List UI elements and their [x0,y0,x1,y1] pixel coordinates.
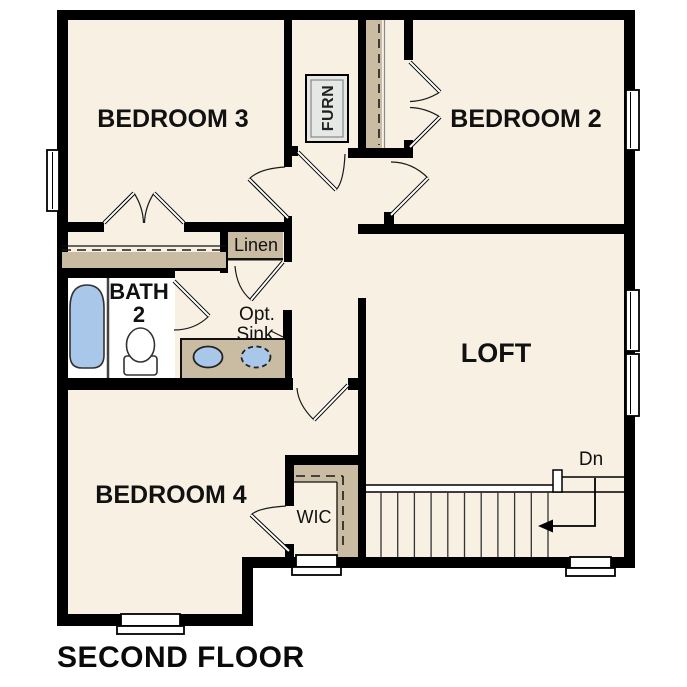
wall-segment [358,224,635,234]
bedroom2-closet [366,20,385,148]
wall-segment [57,10,635,20]
wall-segment [57,378,293,390]
window-bedroom2-right [626,90,639,150]
linen-closet: Linen [228,232,283,261]
wall-segment [358,298,366,557]
closet-shelf [62,252,226,268]
optional-sink-dashed [242,347,271,368]
page-title: SECOND FLOOR [57,641,305,674]
loft-label: LOFT [461,338,532,368]
vanity-sink [194,347,223,368]
bath-label-line2: 2 [133,302,145,327]
stair-stringer [366,485,555,492]
closet-shelf [337,482,358,557]
window-bedroom3-left [47,150,59,211]
bathtub [70,285,104,368]
linen-label: Linen [234,235,278,255]
wall-segment [284,20,292,167]
wall-segment [57,10,68,626]
window-loft-right-upper [626,290,639,351]
window-loft-right-lower [626,354,639,416]
wall-segment [285,455,366,465]
wall-segment [184,222,292,232]
wall-segment [348,378,366,390]
bath-label-line1: BATH [109,279,168,304]
bedroom2-label: BEDROOM 2 [450,105,601,133]
stairs-down-label: Dn [579,449,603,470]
toilet-bowl [127,328,155,362]
wic-label: WIC [297,507,332,527]
bedroom4-label: BEDROOM 4 [95,481,247,509]
furnace-closet: FURN [306,75,348,142]
bedroom3-label: BEDROOM 3 [97,105,248,133]
window-bedroom4-bottom [117,614,184,634]
linen-front-edge [228,258,283,261]
window-wic-bottom [292,555,341,575]
wall-segment [284,146,298,156]
wall-segment [57,222,104,232]
furnace-label: FURN [320,85,337,131]
opt-sink-label-line1: Opt. [239,304,275,325]
floor-plan-drawing: Linen FURN BATH 2 Opt. Sink WIC [0,0,687,687]
newel-post [553,470,562,492]
wall-segment [57,268,175,278]
wall-segment [242,557,253,626]
wall-segment [285,465,294,506]
wall-segment [404,20,413,60]
wall-segment [348,148,413,158]
opt-sink-label-line2: Sink [237,324,274,345]
wall-segment [175,268,220,271]
floor-plan-page: Linen FURN BATH 2 Opt. Sink WIC [0,0,687,687]
window-landing-bottom [566,557,615,576]
wall-segment [358,20,366,156]
closet-shelf [294,465,358,482]
